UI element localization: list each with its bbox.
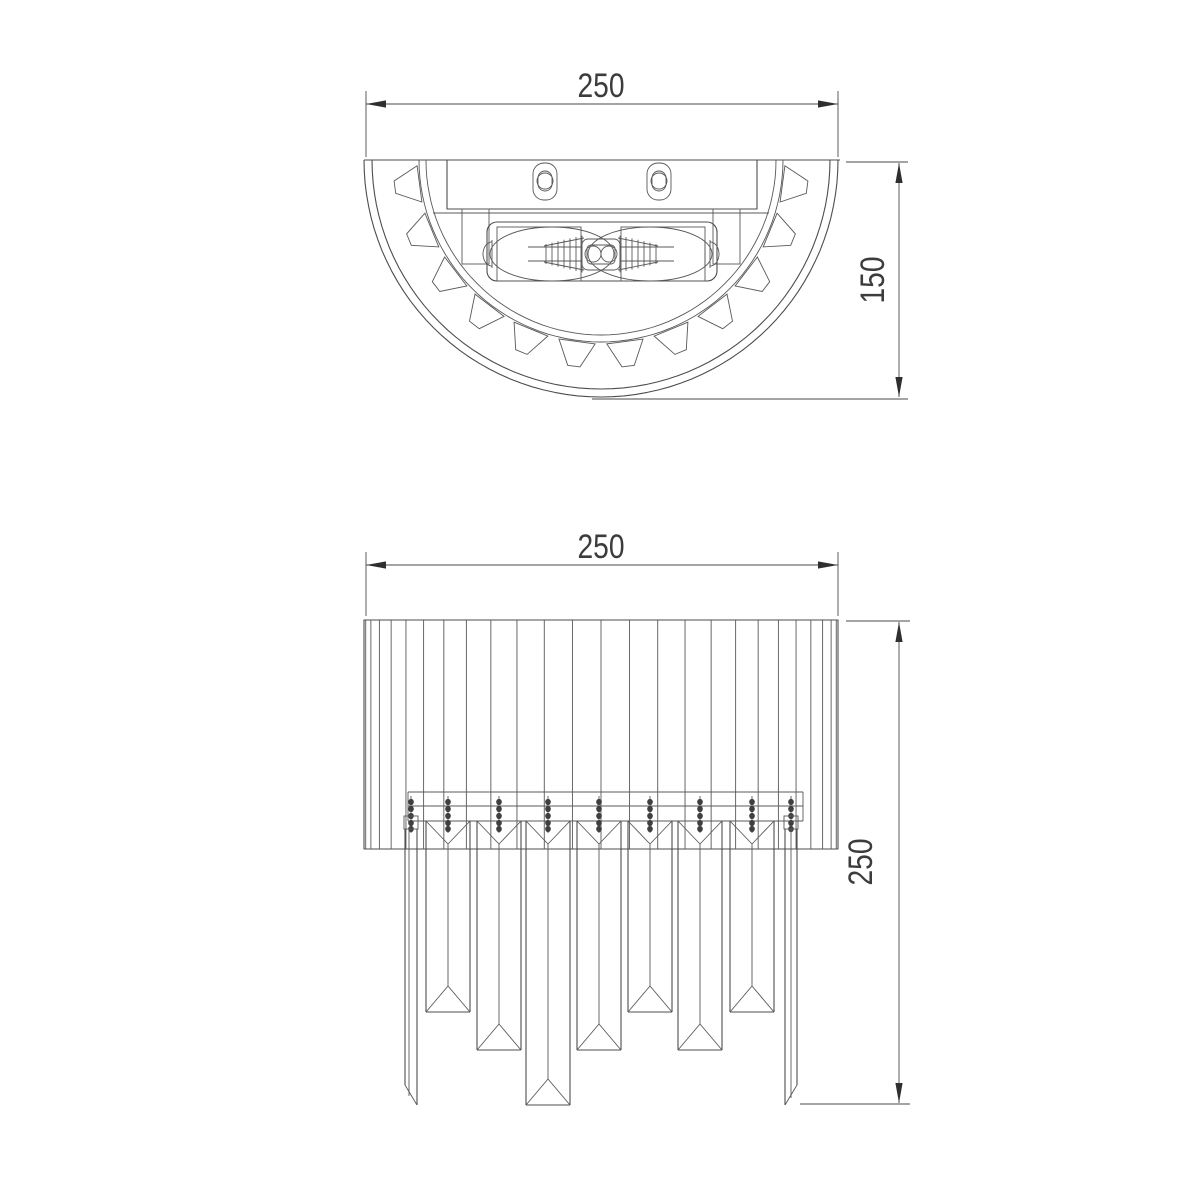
- crystal-prism: [577, 821, 621, 1050]
- crystal-prism: [526, 821, 570, 1105]
- crystal-prisms: [426, 821, 774, 1105]
- edge-crystals: [404, 816, 798, 1105]
- dimension-label-top-depth: 150: [854, 257, 892, 304]
- keyhole-slot: [533, 163, 557, 200]
- mounting-plate: [433, 160, 769, 213]
- hanger-pin: [788, 796, 794, 833]
- dimension-label-top-width: 250: [578, 67, 625, 105]
- crystal-prism: [477, 821, 521, 1050]
- technical-drawing: 250 150 250 250: [0, 0, 1200, 1200]
- hanger-pin: [445, 796, 451, 833]
- hanger-pin: [697, 796, 703, 833]
- hanger-pin: [596, 796, 602, 833]
- crystal-prism: [628, 821, 672, 1012]
- drawing-svg: 250 150 250 250: [0, 0, 1200, 1200]
- crystal-prism: [730, 821, 774, 1012]
- crystal-prism: [678, 821, 722, 1050]
- hanger-pin: [647, 796, 653, 833]
- keyhole-slot: [647, 163, 671, 200]
- front-view-lamp-elevation: [364, 620, 838, 1105]
- crystal-rail: [408, 792, 803, 821]
- top-view-lamp-plan: [364, 160, 840, 397]
- hanger-pin: [408, 796, 414, 833]
- dimension-label-front-width: 250: [578, 528, 625, 566]
- hanger-pin: [496, 796, 502, 833]
- crystal-prism: [426, 821, 470, 1012]
- hanger-pin: [545, 796, 551, 833]
- dimension-label-front-height: 250: [842, 839, 880, 886]
- hanger-pin: [749, 796, 755, 833]
- crystal-ring: [419, 160, 783, 342]
